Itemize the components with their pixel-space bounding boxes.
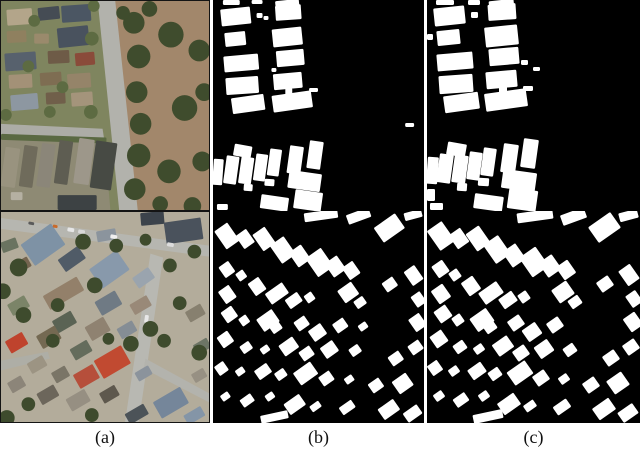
ground-truth-mask-top bbox=[213, 0, 424, 211]
ground-truth-mask-top-image bbox=[213, 0, 424, 211]
prediction-mask-top-image bbox=[427, 0, 640, 211]
caption-label-b: (b) bbox=[213, 423, 424, 451]
image-grid bbox=[0, 0, 640, 423]
prediction-mask-bottom bbox=[427, 211, 640, 423]
aerial-photo-top bbox=[0, 0, 210, 211]
segmentation-results-figure: (a) (b) (c) bbox=[0, 0, 640, 451]
aerial-photo-bottom-image bbox=[1, 212, 209, 422]
caption-row: (a) (b) (c) bbox=[0, 423, 640, 451]
caption-label-c: (c) bbox=[427, 423, 640, 451]
aerial-photo-top-image bbox=[1, 1, 209, 210]
ground-truth-mask-bottom-image bbox=[213, 211, 424, 423]
aerial-photo-bottom bbox=[0, 211, 210, 423]
prediction-mask-top bbox=[427, 0, 640, 211]
prediction-mask-bottom-image bbox=[427, 211, 640, 423]
ground-truth-mask-bottom bbox=[213, 211, 424, 423]
caption-label-a: (a) bbox=[0, 423, 210, 451]
